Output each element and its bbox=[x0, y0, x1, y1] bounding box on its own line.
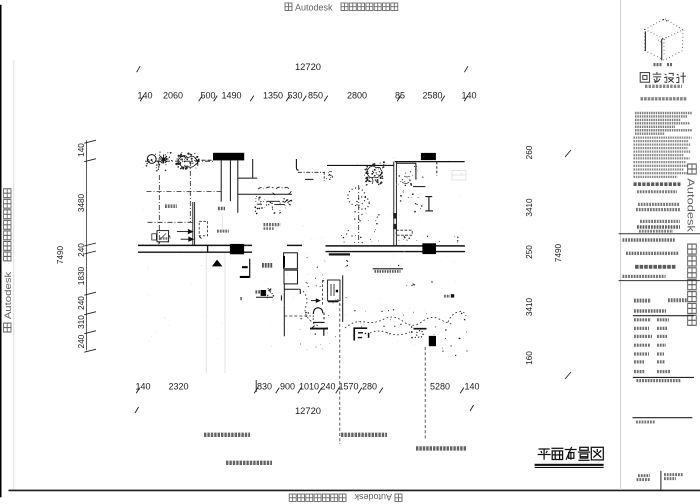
svg-text:Autodesk: Autodesk bbox=[354, 492, 392, 502]
svg-text:1350: 1350 bbox=[263, 90, 283, 100]
svg-text:Autodesk: Autodesk bbox=[295, 3, 333, 13]
svg-text:280: 280 bbox=[362, 382, 377, 392]
svg-text:240: 240 bbox=[77, 296, 86, 310]
svg-text:140: 140 bbox=[137, 90, 152, 100]
svg-text:310: 310 bbox=[77, 315, 86, 329]
svg-text:12720: 12720 bbox=[295, 61, 321, 72]
svg-text:1830: 1830 bbox=[77, 266, 86, 285]
svg-text:7490: 7490 bbox=[554, 243, 563, 262]
svg-text:12720: 12720 bbox=[295, 405, 321, 416]
svg-text:2320: 2320 bbox=[168, 382, 188, 392]
svg-text:260: 260 bbox=[525, 145, 534, 159]
svg-text:3480: 3480 bbox=[77, 193, 86, 212]
svg-text:830: 830 bbox=[257, 382, 272, 392]
svg-text:240: 240 bbox=[320, 382, 335, 392]
svg-text:1490: 1490 bbox=[221, 90, 241, 100]
svg-text:240: 240 bbox=[77, 334, 86, 348]
svg-text:2580: 2580 bbox=[422, 90, 442, 100]
svg-text:2800: 2800 bbox=[347, 90, 367, 100]
svg-text:160: 160 bbox=[525, 351, 534, 365]
svg-text:850: 850 bbox=[308, 90, 323, 100]
svg-text:2060: 2060 bbox=[163, 90, 183, 100]
svg-text:Autodesk: Autodesk bbox=[4, 271, 14, 320]
svg-text:85: 85 bbox=[395, 90, 405, 100]
svg-text:5280: 5280 bbox=[430, 382, 450, 392]
svg-text:140: 140 bbox=[461, 90, 476, 100]
svg-text:Autodesk: Autodesk bbox=[685, 178, 697, 232]
svg-text:140: 140 bbox=[464, 382, 479, 392]
svg-text:140: 140 bbox=[77, 143, 86, 157]
svg-text:250: 250 bbox=[525, 245, 534, 259]
svg-text:530: 530 bbox=[287, 90, 302, 100]
svg-text:7490: 7490 bbox=[56, 245, 65, 264]
svg-text:1010: 1010 bbox=[299, 382, 319, 392]
svg-text:900: 900 bbox=[280, 382, 295, 392]
svg-text:500: 500 bbox=[200, 90, 215, 100]
svg-text:240: 240 bbox=[77, 243, 86, 257]
svg-text:1570: 1570 bbox=[338, 382, 358, 392]
svg-text:3410: 3410 bbox=[525, 198, 534, 217]
svg-text:3410: 3410 bbox=[525, 297, 534, 316]
